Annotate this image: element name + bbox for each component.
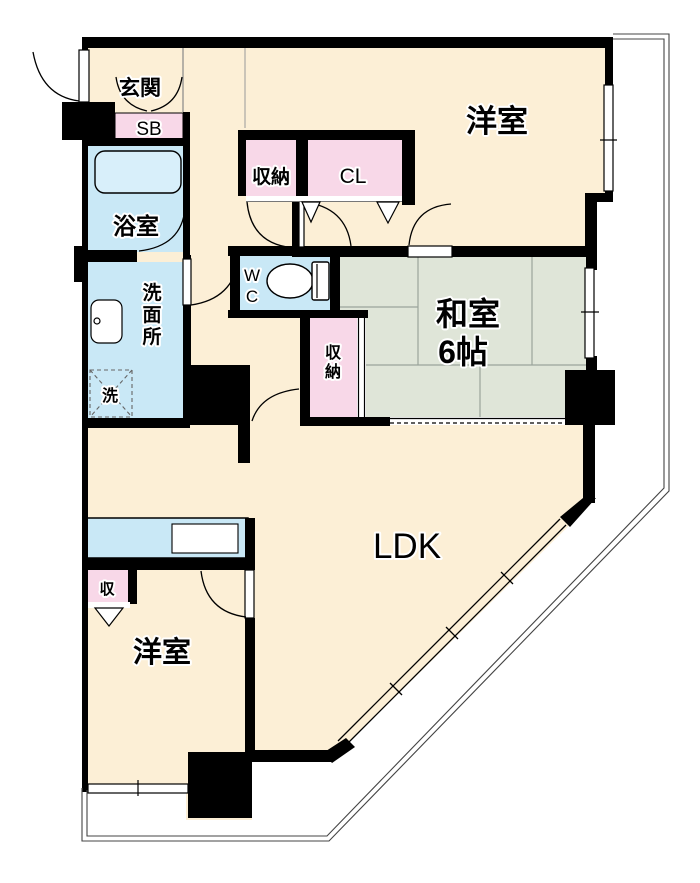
label-washroom: 洗 面 所 — [142, 281, 161, 348]
wall — [245, 518, 255, 560]
entry-door-arc — [33, 52, 79, 101]
label-washitsu-size: 6帖 — [438, 334, 488, 370]
pillar — [188, 752, 252, 818]
label-genkan: 玄関 — [119, 76, 161, 100]
wall — [605, 48, 613, 87]
kitchen-sink — [172, 524, 238, 553]
wall — [74, 246, 88, 282]
toilet-bowl — [267, 264, 313, 298]
wall — [296, 140, 308, 196]
western-bottom-door-leaf — [245, 570, 254, 618]
wall — [585, 202, 597, 257]
wall — [250, 750, 332, 762]
window-east-washitsu — [585, 268, 594, 358]
label-wc-char: W — [244, 266, 260, 285]
label-washitsu-name: 和室 — [436, 296, 500, 332]
western-top-door-leaf — [408, 246, 452, 257]
wall — [82, 558, 255, 570]
wall — [402, 130, 415, 205]
label-storage-mid-char: 納 — [325, 362, 341, 381]
label-storage-bottom: 収 — [99, 580, 115, 598]
label-western-top: 洋室 — [466, 104, 528, 139]
label-closet: CL — [340, 165, 367, 188]
wall — [238, 425, 250, 463]
toilet-tank — [312, 262, 329, 300]
floor-plan-svg: 玄関 SB 浴室 洗 面 所 洗 W C 収納 CL 収 納 和室 6帖 洋室 … — [0, 0, 700, 883]
wall — [88, 250, 137, 262]
wall — [452, 246, 597, 257]
bathtub — [95, 151, 181, 193]
wall — [82, 100, 88, 792]
label-washer: 洗 — [102, 386, 118, 405]
wall — [300, 417, 390, 426]
wall — [82, 37, 613, 48]
label-washroom-char: 面 — [142, 305, 161, 326]
wall — [128, 570, 137, 604]
label-bathroom: 浴室 — [113, 213, 159, 239]
pillar — [565, 370, 615, 425]
wall — [585, 193, 613, 202]
wall — [183, 112, 190, 255]
wall — [292, 246, 408, 257]
label-washroom-char: 洗 — [142, 281, 161, 304]
wall — [183, 305, 191, 425]
wall — [583, 425, 595, 503]
pillar — [190, 365, 250, 425]
wall — [238, 130, 408, 140]
entry-door-leaf — [79, 50, 89, 102]
wall — [245, 618, 255, 752]
label-ldk: LDK — [373, 527, 441, 566]
label-storage-mid-char: 収 — [325, 344, 342, 362]
corridor-door-leaf — [299, 200, 304, 247]
label-western-bottom: 洋室 — [133, 635, 191, 669]
floor-plan-canvas: 玄関 SB 浴室 洗 面 所 洗 W C 収納 CL 収 納 和室 6帖 洋室 … — [0, 0, 700, 883]
wall — [228, 310, 368, 318]
wall — [330, 256, 340, 318]
window-east-top — [604, 85, 613, 191]
wall — [82, 418, 190, 428]
label-shoe-box: SB — [136, 119, 161, 140]
washbasin — [91, 300, 122, 343]
wall — [62, 102, 115, 140]
wall — [300, 318, 310, 417]
label-wc-char: C — [246, 287, 258, 306]
label-washroom-char: 所 — [142, 326, 161, 348]
wall — [183, 255, 191, 259]
wall — [238, 140, 246, 196]
storage-bottom-door-track — [88, 602, 130, 608]
washroom-door-leaf — [183, 259, 191, 305]
label-storage-hall: 収納 — [252, 165, 290, 188]
